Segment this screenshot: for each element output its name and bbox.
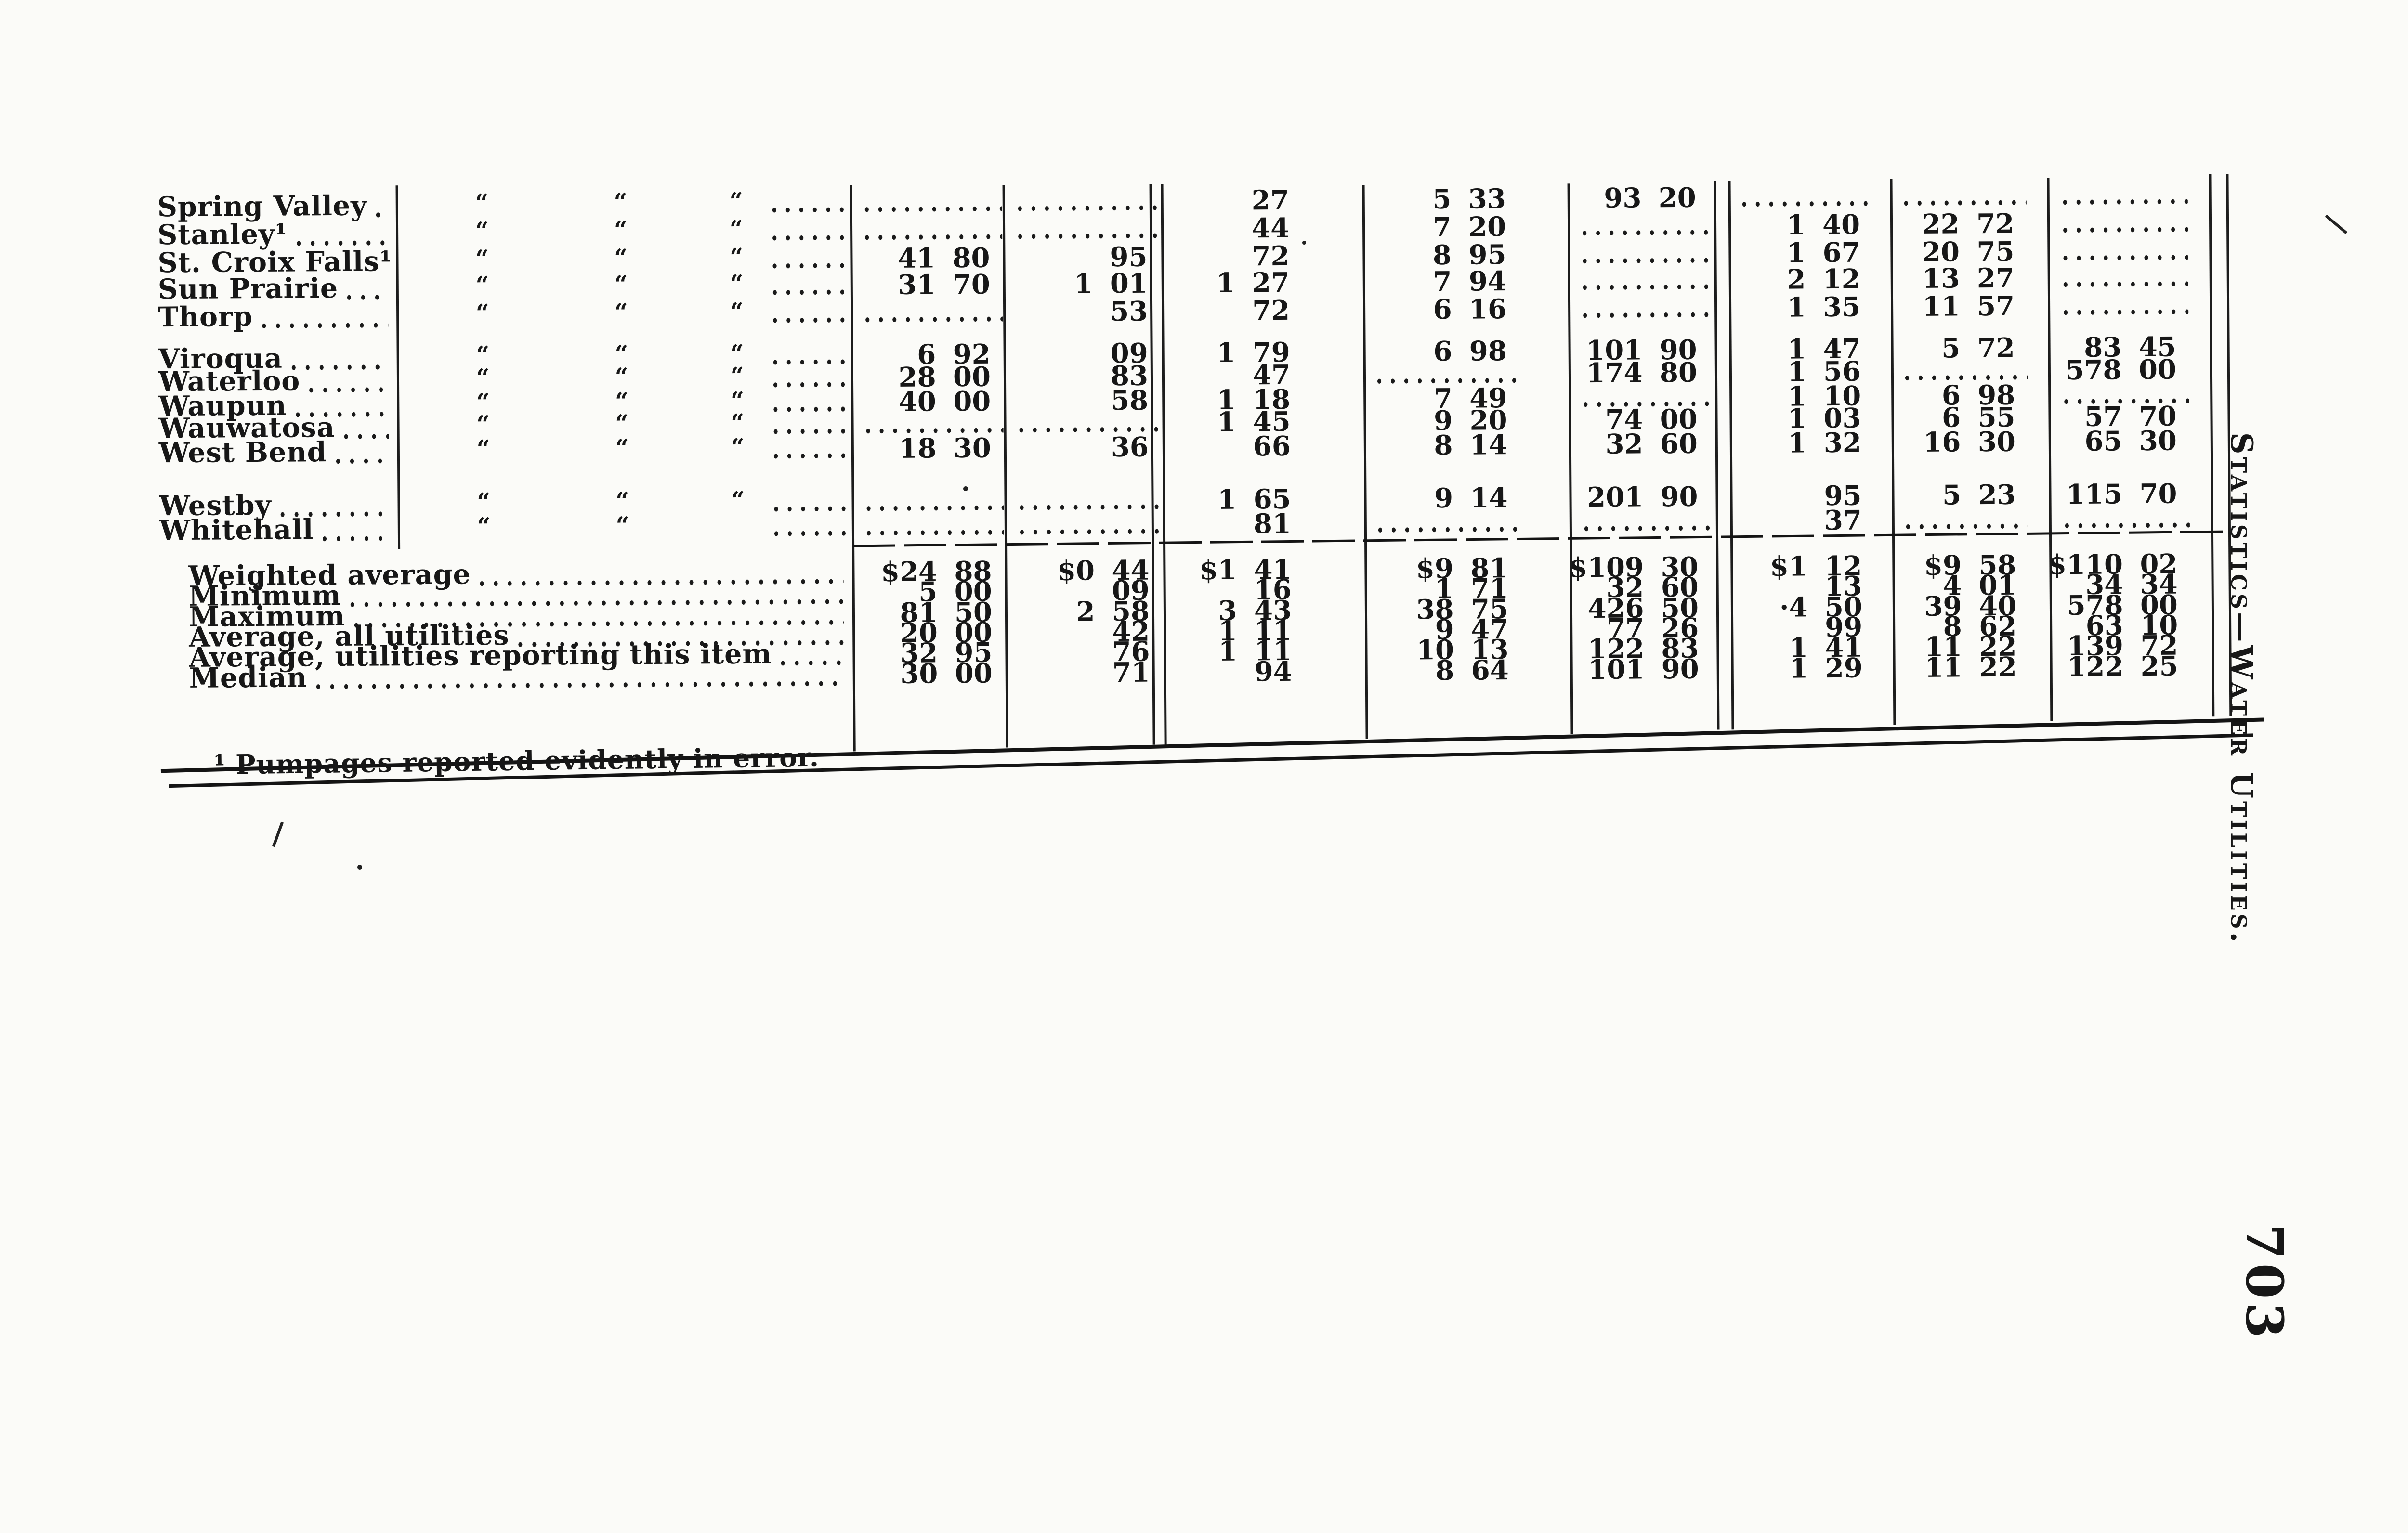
statistics-table: Spring Valley“““275 3393 20Stanley¹“““44… bbox=[0, 0, 2408, 7]
ditto-mark: “ bbox=[730, 272, 744, 295]
empty-cell-dots bbox=[863, 505, 1004, 512]
utility-name: Whitehall bbox=[159, 512, 314, 548]
ditto-mark: “ bbox=[730, 190, 743, 213]
empty-cell-dots bbox=[2059, 226, 2188, 234]
empty-cell-dots bbox=[2059, 309, 2188, 316]
dot-leader bbox=[318, 535, 390, 542]
ditto-mark: “ bbox=[615, 365, 628, 388]
empty-cell-dots bbox=[861, 234, 1002, 241]
utility-name: West Bend bbox=[159, 435, 327, 470]
ditto-mark: “ bbox=[614, 190, 628, 213]
ditto-mark: “ bbox=[477, 490, 490, 513]
ditto-mark: “ bbox=[730, 300, 744, 323]
utility-name: Thorp bbox=[158, 299, 253, 335]
scan-speck-dot bbox=[1302, 241, 1306, 245]
ditto-mark: “ bbox=[476, 301, 489, 325]
empty-cell-dots bbox=[2059, 198, 2188, 206]
ditto-mark: “ bbox=[477, 437, 490, 460]
summary-name: Median bbox=[189, 660, 308, 695]
ditto-mark: “ bbox=[731, 436, 745, 459]
column-rule bbox=[396, 185, 401, 549]
cell-value: 81 bbox=[1089, 507, 1291, 543]
empty-cell-dots bbox=[2059, 281, 2188, 288]
ditto-mark: “ bbox=[615, 412, 628, 435]
cell-value: 11 57 bbox=[1812, 289, 2015, 325]
ditto-mark: “ bbox=[730, 246, 743, 269]
ditto-mark: “ bbox=[476, 390, 490, 414]
cell-value: 6 16 bbox=[1304, 292, 1506, 328]
ditto-mark: “ bbox=[616, 514, 629, 537]
empty-cell-dots bbox=[1902, 523, 2028, 531]
ditto-mark: “ bbox=[731, 489, 745, 512]
cell-value: 94 bbox=[1090, 654, 1292, 690]
ditto-mark: “ bbox=[614, 218, 628, 241]
cell-value: 115 70 bbox=[1975, 477, 2177, 513]
ditto-mark: “ bbox=[615, 489, 629, 512]
ditto-mark: “ bbox=[476, 273, 489, 297]
ditto-mark: “ bbox=[730, 218, 743, 241]
ditto-mark: “ bbox=[615, 300, 628, 324]
ditto-mark: “ bbox=[477, 515, 491, 538]
ditto-mark: “ bbox=[731, 389, 744, 412]
empty-cell-dots bbox=[1738, 200, 1872, 208]
ditto-leader-dots bbox=[770, 530, 846, 537]
empty-cell-dots bbox=[863, 529, 1004, 537]
ditto-mark: “ bbox=[475, 219, 489, 242]
ditto-mark: “ bbox=[475, 191, 489, 214]
ditto-mark: “ bbox=[475, 247, 489, 270]
empty-cell-dots bbox=[2061, 521, 2190, 529]
ditto-leader-dots bbox=[768, 207, 844, 214]
ditto-mark: “ bbox=[476, 366, 490, 389]
ditto-mark: “ bbox=[731, 411, 744, 434]
ditto-mark: “ bbox=[615, 436, 629, 459]
ditto-mark: “ bbox=[615, 390, 628, 413]
table-row-label: West Bend bbox=[159, 434, 391, 470]
summary-row-label: Median bbox=[189, 657, 846, 696]
dot-leader bbox=[332, 457, 389, 465]
ditto-mark: “ bbox=[731, 364, 744, 388]
cell-value: 37 bbox=[1660, 503, 1862, 539]
cell-value: 65 30 bbox=[1975, 424, 2177, 460]
cell-value: 122 25 bbox=[1976, 649, 2178, 685]
side-running-title: Statistics—Water Utilities. bbox=[2224, 432, 2260, 945]
ditto-mark: “ bbox=[615, 342, 628, 365]
page-number: 703 bbox=[2235, 1224, 2295, 1342]
scanned-page: Spring Valley“““275 3393 20Stanley¹“““44… bbox=[0, 0, 2408, 1533]
cell-value: 72 bbox=[1087, 293, 1290, 329]
cell-value: 8 64 bbox=[1307, 653, 1509, 689]
table-row-label: Thorp bbox=[158, 299, 390, 335]
ditto-mark: “ bbox=[476, 343, 490, 366]
scan-speck-dot bbox=[963, 486, 968, 491]
ditto-mark: “ bbox=[615, 273, 628, 296]
empty-cell-dots bbox=[2059, 254, 2188, 262]
cell-value: 66 bbox=[1088, 429, 1291, 465]
cell-value: 6 98 bbox=[1304, 334, 1506, 370]
ditto-leader-dots bbox=[770, 506, 846, 513]
cell-value: 8 14 bbox=[1305, 428, 1507, 464]
empty-cell-dots bbox=[1374, 526, 1520, 533]
ditto-leader-dots bbox=[768, 234, 844, 242]
ditto-leader-dots bbox=[769, 317, 845, 324]
dot-leader bbox=[312, 680, 844, 690]
scan-speck-dot bbox=[357, 865, 362, 870]
ditto-mark: “ bbox=[476, 413, 490, 436]
ditto-mark: “ bbox=[731, 342, 744, 365]
table-rules bbox=[0, 0, 2408, 7]
empty-cell-dots bbox=[1900, 199, 2027, 207]
table-row-label: Whitehall bbox=[159, 512, 392, 548]
ditto-mark: “ bbox=[614, 246, 628, 269]
empty-cell-dots bbox=[861, 206, 1002, 213]
cell-value: 9 14 bbox=[1305, 481, 1507, 517]
column-rule bbox=[2209, 174, 2214, 716]
dot-leader bbox=[258, 322, 388, 329]
